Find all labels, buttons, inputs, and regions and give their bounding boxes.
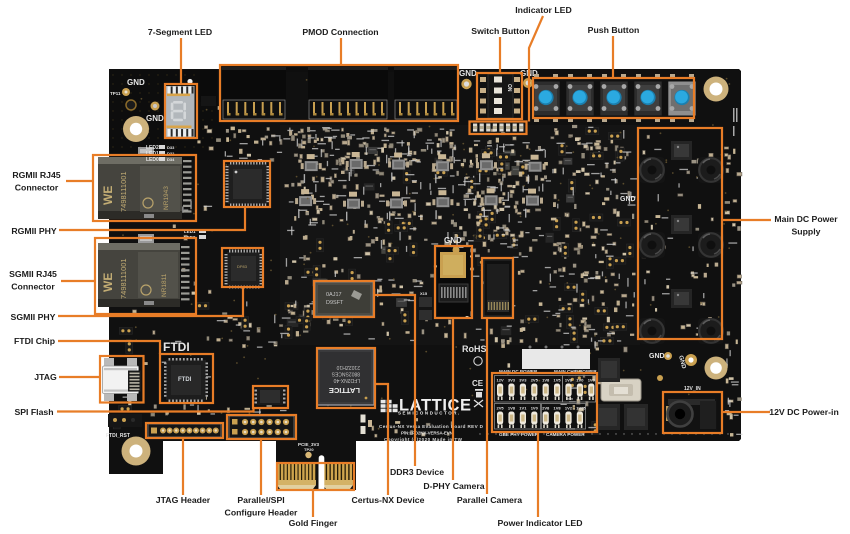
svg-text:LED0: LED0 xyxy=(146,157,159,163)
svg-text:1V8: 1V8 xyxy=(554,406,562,411)
svg-text:DP83: DP83 xyxy=(237,264,248,269)
svg-text:7498111001: 7498111001 xyxy=(119,171,128,212)
svg-text:SGMII PHY: SGMII PHY xyxy=(11,312,56,322)
svg-text:WE: WE xyxy=(101,273,115,292)
svg-text:1V1: 1V1 xyxy=(519,406,527,411)
svg-text:Certus-NX Versa Evaluation Boa: Certus-NX Versa Evaluation Board REV D xyxy=(379,424,484,429)
svg-text:RGMII RJ45: RGMII RJ45 xyxy=(12,170,60,180)
svg-text:P/N:LFD2NX-VERSA-EVN: P/N:LFD2NX-VERSA-EVN xyxy=(401,431,454,436)
svg-text:FTDI Chip: FTDI Chip xyxy=(14,336,55,346)
svg-text:Gold Finger: Gold Finger xyxy=(289,518,338,528)
svg-text:2V8: 2V8 xyxy=(542,406,550,411)
svg-text:7498111001: 7498111001 xyxy=(119,258,128,299)
svg-text:3V3: 3V3 xyxy=(508,378,516,383)
svg-text:1V0: 1V0 xyxy=(531,406,539,411)
svg-text:Parallel Camera: Parallel Camera xyxy=(457,495,522,505)
svg-text:GND: GND xyxy=(649,353,665,360)
svg-text:TP20: TP20 xyxy=(304,447,314,452)
svg-text:LATTICE: LATTICE xyxy=(329,386,360,395)
svg-text:FTDI: FTDI xyxy=(163,340,190,354)
svg-text:Switch Button: Switch Button xyxy=(471,26,529,36)
svg-text:D-PHY Camera: D-PHY Camera xyxy=(423,481,484,491)
svg-text:1V8: 1V8 xyxy=(542,378,550,383)
svg-text:SEMICONDUCTOR.: SEMICONDUCTOR. xyxy=(398,411,461,416)
svg-text:NR1811: NR1811 xyxy=(161,273,168,297)
svg-text:Indicator LED: Indicator LED xyxy=(515,5,571,15)
svg-text:JTAG Header: JTAG Header xyxy=(156,495,211,505)
svg-text:GND: GND xyxy=(620,196,636,203)
svg-text:2V5: 2V5 xyxy=(531,378,539,383)
svg-text:0AJ17: 0AJ17 xyxy=(326,292,342,298)
svg-text:1V8: 1V8 xyxy=(508,406,516,411)
svg-text:GND: GND xyxy=(146,114,164,123)
svg-text:FTDI: FTDI xyxy=(178,377,192,383)
svg-text:RGMII PHY: RGMII PHY xyxy=(11,226,57,236)
svg-text:SPI Flash: SPI Flash xyxy=(14,407,53,417)
svg-text:1V5: 1V5 xyxy=(554,378,562,383)
svg-text:1V0: 1V0 xyxy=(588,378,596,383)
svg-text:PMOD Connection: PMOD Connection xyxy=(302,27,378,37)
svg-text:Parallel/SPI: Parallel/SPI xyxy=(237,495,284,505)
svg-text:Configure Header: Configure Header xyxy=(225,508,299,518)
svg-text:Copyright (c)2020 Made in TW: Copyright (c)2020 Made in TW xyxy=(384,437,463,442)
svg-text:Connector: Connector xyxy=(11,282,55,292)
svg-text:2102ZH10: 2102ZH10 xyxy=(336,364,360,370)
svg-text:Supply: Supply xyxy=(792,227,821,237)
svg-text:Push Button: Push Button xyxy=(588,25,640,35)
svg-text:D9SFT: D9SFT xyxy=(326,300,344,306)
svg-text:DDR3 Device: DDR3 Device xyxy=(390,467,444,477)
svg-text:12V: 12V xyxy=(497,378,504,383)
svg-text:NR1943: NR1943 xyxy=(163,186,170,210)
svg-text:GND: GND xyxy=(459,69,477,78)
svg-text:D34: D34 xyxy=(167,157,175,162)
svg-text:JTAG: JTAG xyxy=(34,372,57,382)
svg-text:SGMII RJ45: SGMII RJ45 xyxy=(9,269,57,279)
svg-text:1V8: 1V8 xyxy=(565,378,573,383)
svg-text:GND: GND xyxy=(444,236,462,245)
svg-text:TP11: TP11 xyxy=(110,91,121,96)
svg-text:12V DC Power-in: 12V DC Power-in xyxy=(769,407,839,417)
svg-text:1V0: 1V0 xyxy=(576,378,584,383)
svg-text:X15: X15 xyxy=(420,291,428,296)
svg-text:LFD2NX-40: LFD2NX-40 xyxy=(333,377,360,383)
svg-text:D33: D33 xyxy=(167,145,175,150)
svg-text:GND: GND xyxy=(127,78,145,87)
svg-text:Power Indicator LED: Power Indicator LED xyxy=(498,518,583,528)
svg-text:7-Segment LED: 7-Segment LED xyxy=(148,27,212,37)
svg-text:RoHS: RoHS xyxy=(462,344,487,354)
svg-text:Connector: Connector xyxy=(15,183,59,193)
svg-text:ON: ON xyxy=(506,84,512,92)
svg-text:WE: WE xyxy=(101,186,115,205)
svg-text:2V5: 2V5 xyxy=(497,406,505,411)
svg-text:3V3: 3V3 xyxy=(519,378,527,383)
svg-text:Main DC Power: Main DC Power xyxy=(774,214,838,224)
svg-text:Certus-NX Device: Certus-NX Device xyxy=(352,495,425,505)
svg-text:1V05: 1V05 xyxy=(576,406,586,411)
svg-text:1V2: 1V2 xyxy=(565,406,573,411)
svg-text:FTDI_RST: FTDI_RST xyxy=(106,433,130,439)
svg-text:CE: CE xyxy=(472,379,484,388)
svg-text:8802SNCES: 8802SNCES xyxy=(331,371,360,377)
